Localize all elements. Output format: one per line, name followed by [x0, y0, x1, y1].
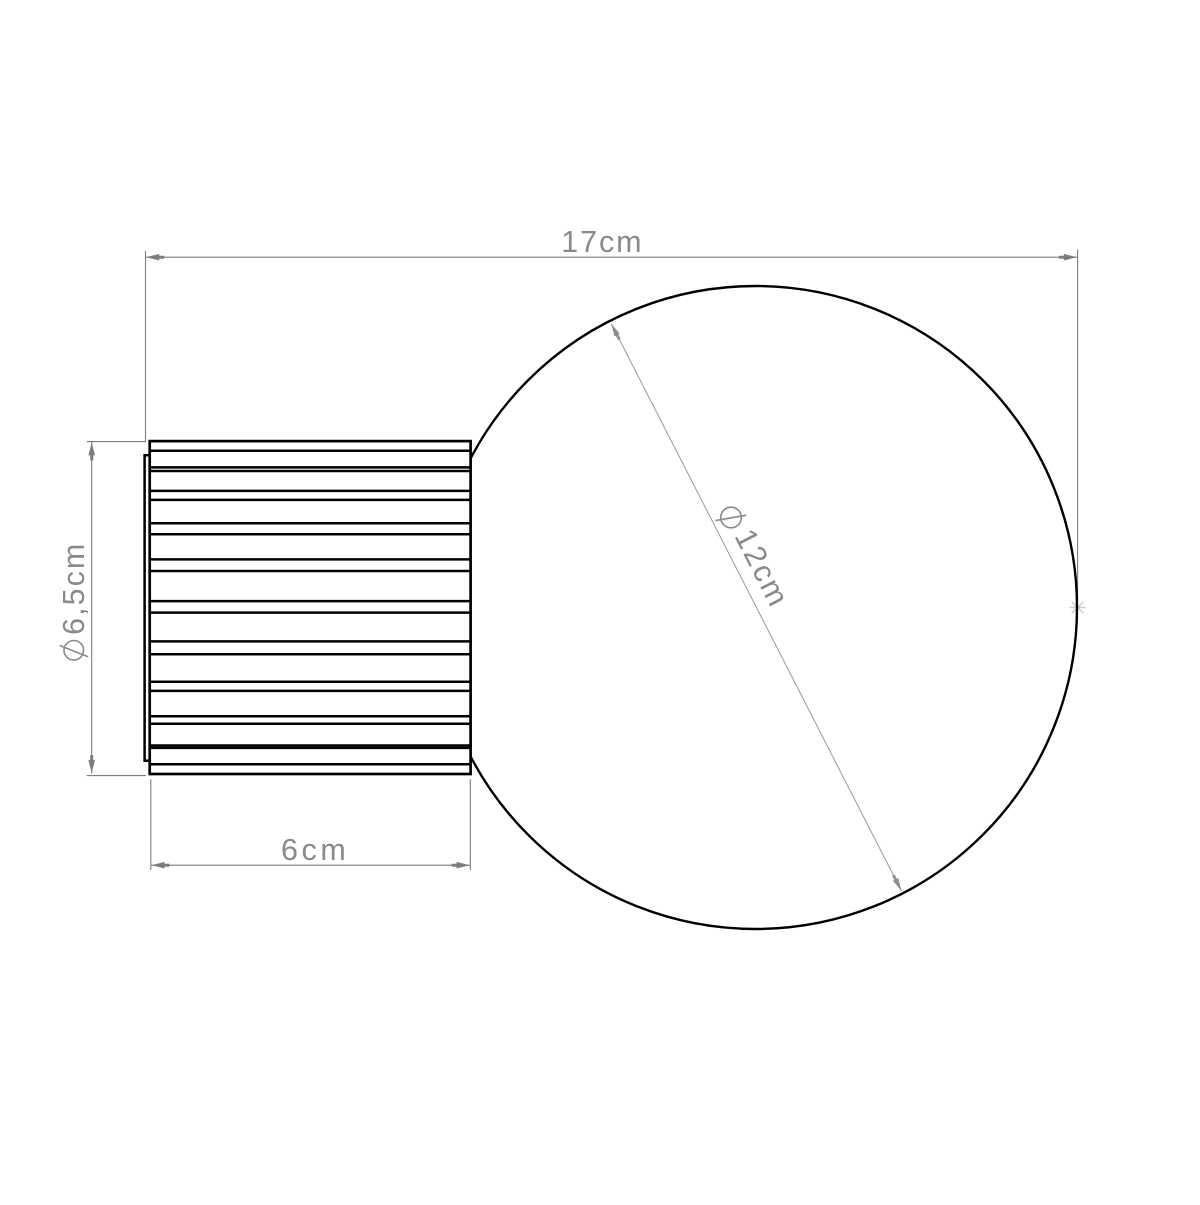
svg-text:6cm: 6cm: [281, 833, 349, 867]
svg-text:6,5cm: 6,5cm: [57, 542, 91, 635]
svg-text:17cm: 17cm: [561, 225, 643, 259]
